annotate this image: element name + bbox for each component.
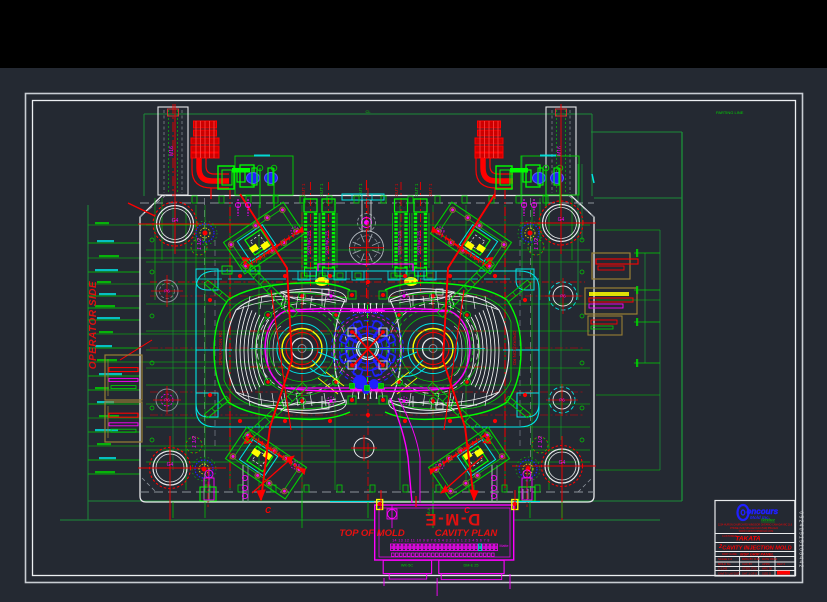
svg-text:TAKATA: TAKATA — [735, 536, 761, 543]
svg-text:4: 4 — [226, 269, 229, 275]
svg-text:PART NAME: PART NAME — [722, 552, 737, 556]
svg-text:DATE 05/24: DATE 05/24 — [762, 557, 777, 561]
svg-text:SCALE 1:4: SCALE 1:4 — [718, 557, 732, 561]
svg-text:M16: M16 — [169, 146, 175, 156]
svg-text:REV 2: REV 2 — [777, 562, 786, 566]
svg-text:D-M-E: D-M-E — [424, 510, 481, 529]
svg-text:C-1245: C-1245 — [718, 567, 728, 571]
svg-text:05240515108442: 05240515108442 — [798, 511, 804, 568]
svg-text:M16: M16 — [557, 146, 563, 156]
svg-text:DM-E 25: DM-E 25 — [464, 564, 479, 568]
svg-text:G4: G4 — [172, 218, 179, 224]
svg-text:C: C — [265, 506, 271, 515]
svg-text:P6: P6 — [559, 398, 565, 403]
svg-text:14 13 12 11 10 9 8 7 6 5 4 3 2: 14 13 12 11 10 9 8 7 6 5 4 3 2 1 0 1 2 3… — [392, 539, 490, 543]
svg-text:MSP GRIP PANEL: MSP GRIP PANEL — [740, 552, 774, 557]
svg-text:OPERATION RD: OPERATION RD — [512, 331, 517, 366]
svg-text:CAVITY PLAN: CAVITY PLAN — [435, 528, 499, 539]
svg-text:OUT 1: OUT 1 — [414, 183, 419, 196]
svg-text:P6: P6 — [560, 294, 566, 299]
svg-text:APPR: APPR — [762, 562, 770, 566]
svg-text:OUT 1: OUT 1 — [319, 183, 324, 196]
svg-text:WWW.CONCOURSMOLD.COM: WWW.CONCOURSMOLD.COM — [739, 530, 773, 533]
svg-text:OPERATION RD: OPERATION RD — [218, 330, 223, 365]
svg-text:SIZE D: SIZE D — [762, 572, 771, 576]
svg-text:PARTING LINE: PARTING LINE — [716, 110, 744, 115]
svg-text:DWG BY R.M.: DWG BY R.M. — [742, 557, 760, 561]
svg-text:SPRING 25: SPRING 25 — [307, 231, 312, 255]
svg-text:G4: G4 — [167, 462, 174, 468]
svg-text:SPRING 25: SPRING 25 — [417, 231, 422, 255]
svg-text:CHK BY: CHK BY — [742, 562, 753, 566]
svg-text:OUT 1: OUT 1 — [428, 183, 433, 196]
svg-text:Matte: Matte — [500, 544, 509, 548]
svg-text:1 1/2: 1 1/2 — [538, 436, 544, 448]
svg-text:1 1/2: 1 1/2 — [192, 436, 198, 448]
svg-text:OUT 1: OUT 1 — [301, 183, 306, 196]
svg-text:G4: G4 — [558, 217, 565, 223]
svg-text:OUT 1: OUT 1 — [394, 183, 399, 196]
svg-text:16 A: 16 A — [426, 508, 431, 516]
svg-text:STEEL P20: STEEL P20 — [742, 567, 757, 571]
svg-text:1 1/2: 1 1/2 — [197, 238, 203, 250]
svg-text:P6: P6 — [164, 289, 170, 294]
svg-text:SPRING 25: SPRING 25 — [397, 231, 402, 255]
svg-text:MOLD No: MOLD No — [718, 562, 731, 566]
svg-text:P6: P6 — [164, 398, 170, 403]
svg-text:4: 4 — [254, 269, 257, 275]
svg-text:SPRING 25: SPRING 25 — [325, 231, 330, 255]
svg-text:Windsor: Windsor — [761, 518, 776, 522]
svg-text:CL: CL — [365, 109, 371, 114]
svg-text:SHT 1 OF 8: SHT 1 OF 8 — [742, 572, 757, 576]
svg-text:1 1/2: 1 1/2 — [534, 238, 540, 250]
svg-text:OPERATOR SIDE: OPERATOR SIDE — [88, 281, 99, 369]
svg-text:CAVITY LAYOUT: CAVITY LAYOUT — [718, 572, 740, 576]
svg-text:G4: G4 — [559, 460, 566, 466]
svg-text:WK-5C: WK-5C — [401, 564, 413, 568]
svg-text:TOP OF MOLD: TOP OF MOLD — [339, 528, 405, 539]
svg-text:HRC 30: HRC 30 — [762, 567, 772, 571]
svg-text:CAVITY INJECTION MOLD: CAVITY INJECTION MOLD — [722, 546, 791, 552]
